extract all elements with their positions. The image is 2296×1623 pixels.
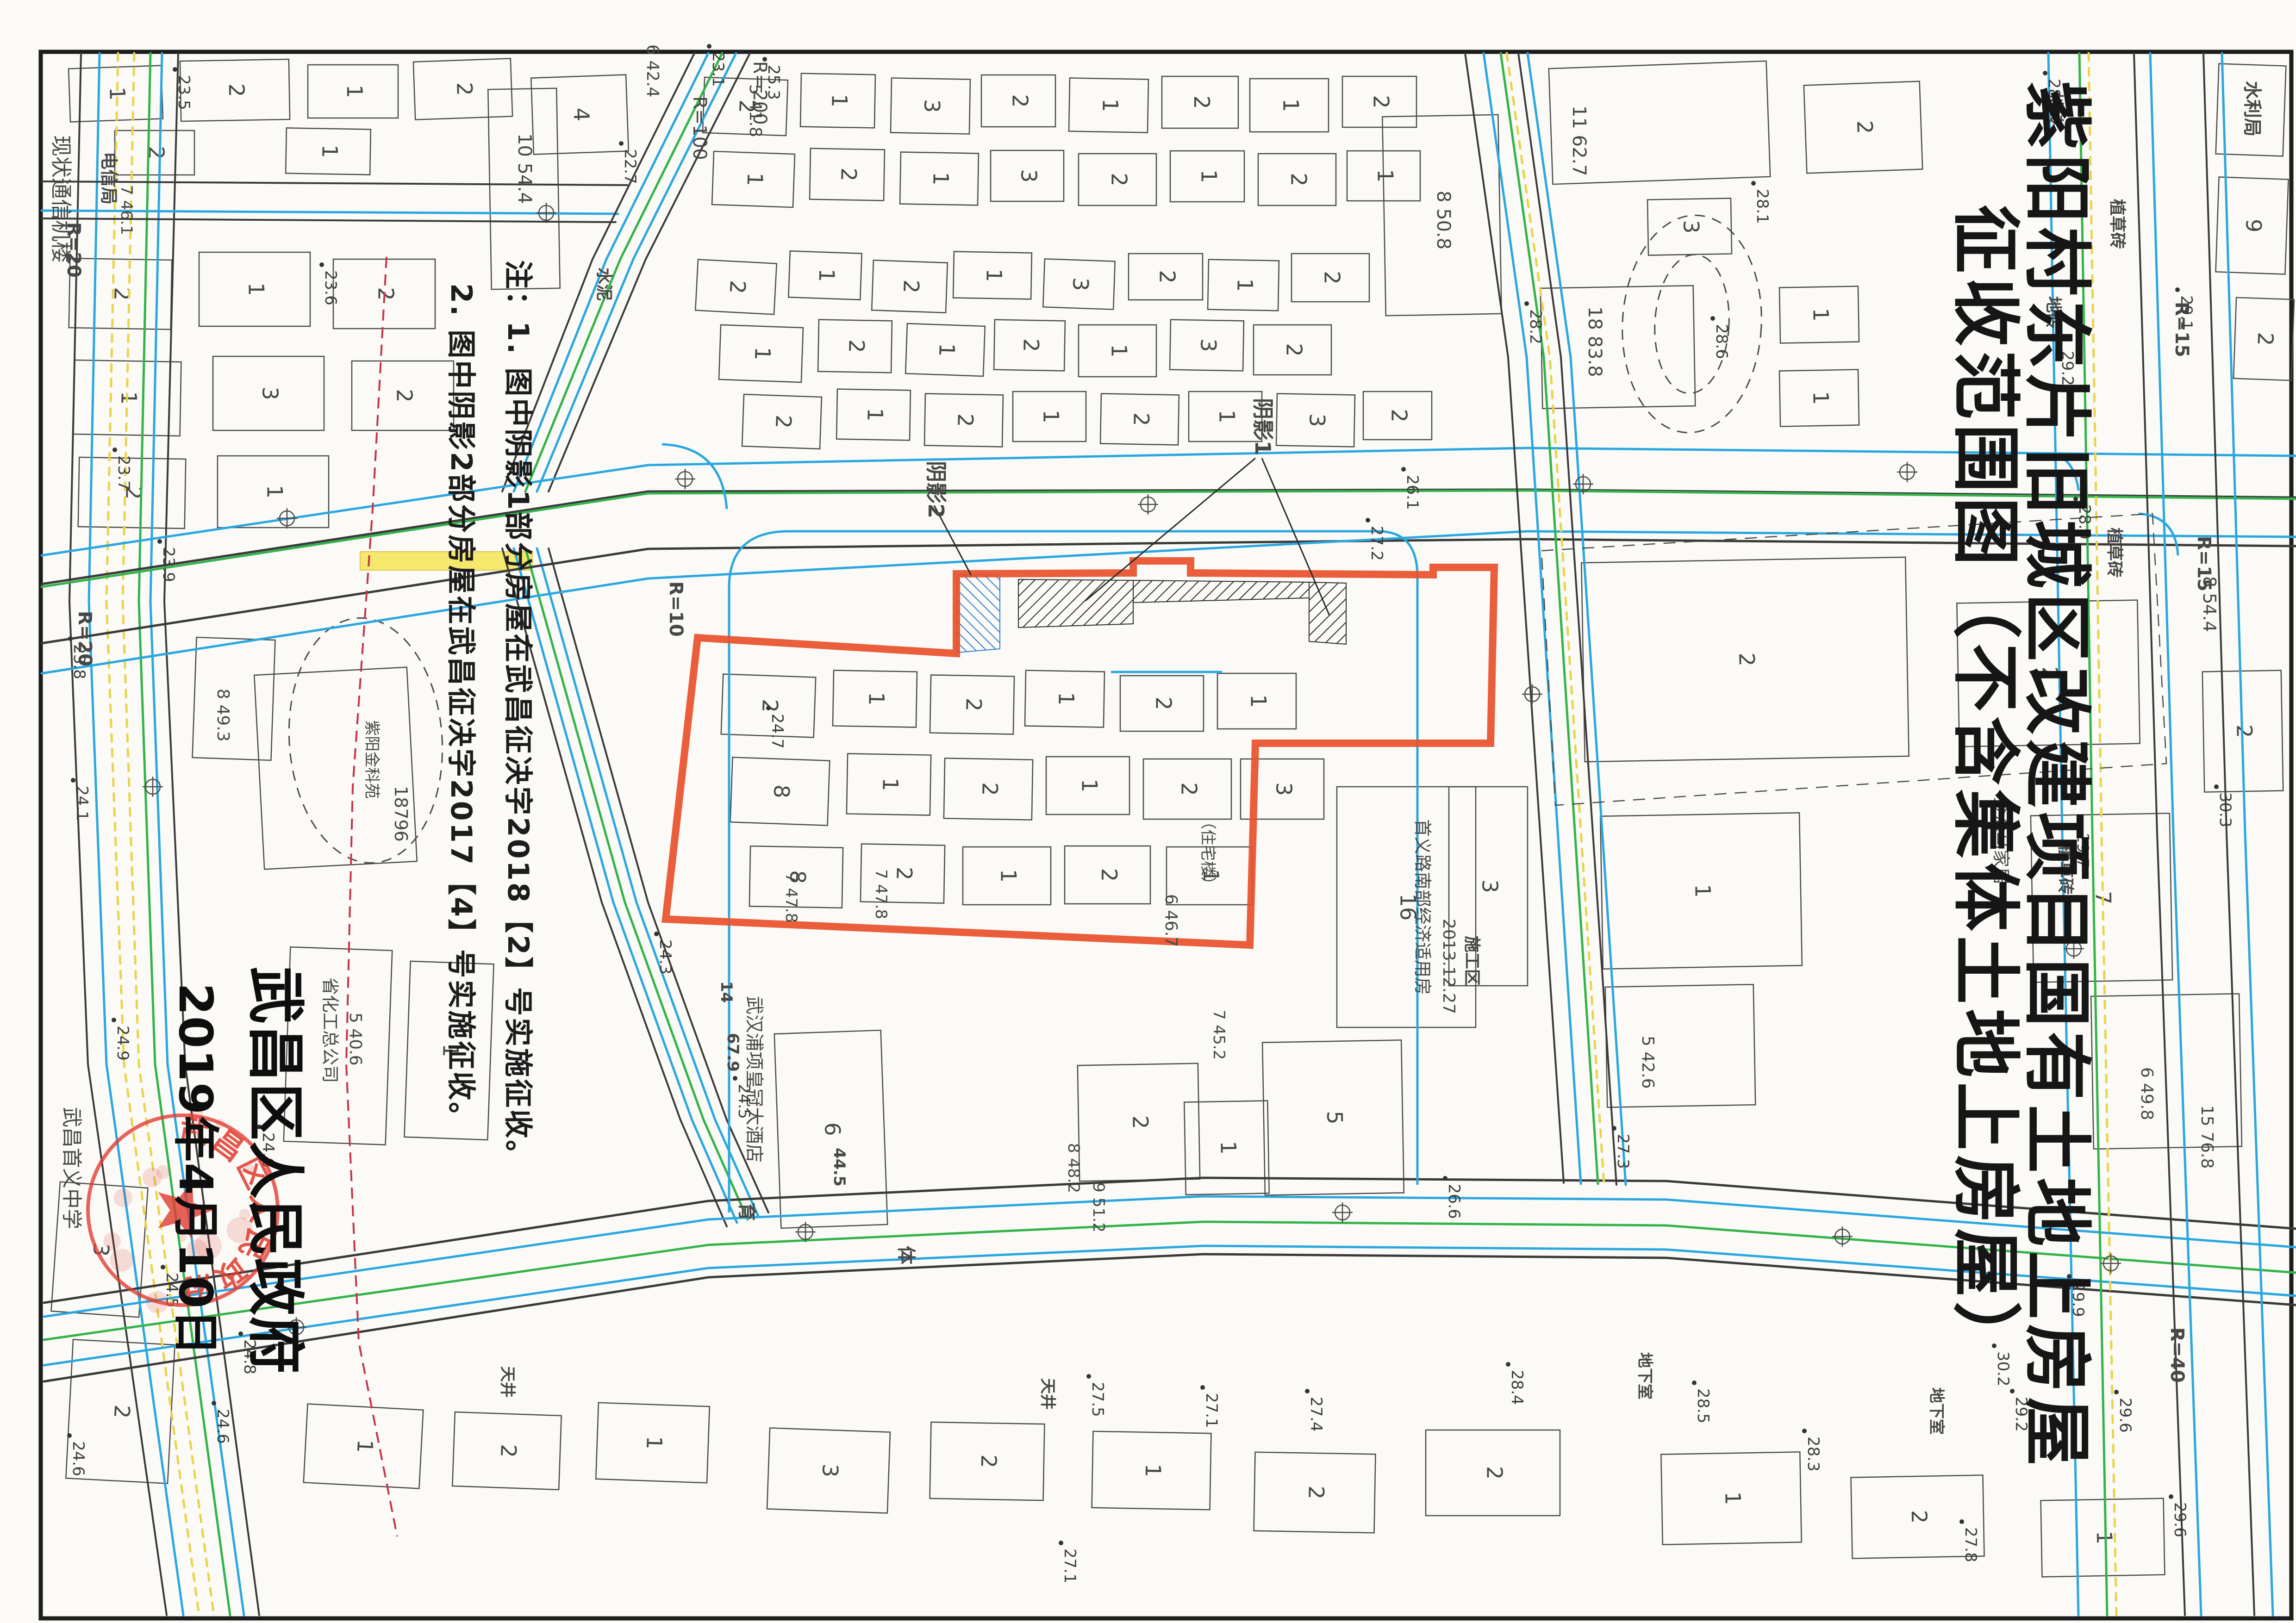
parcel-number: 2 — [898, 280, 924, 294]
map-label: 9 51.2 — [1089, 1182, 1108, 1232]
map-label: 6 46.7 — [1161, 894, 1180, 947]
parcel-number: 1 — [1808, 308, 1834, 322]
map-label: 5 41.8 — [746, 84, 765, 137]
parcel-number: 1 — [1141, 1463, 1166, 1477]
parcel-number: 1 — [827, 93, 852, 107]
parcel-number: 1 — [742, 172, 768, 187]
map-label: 育 — [736, 1202, 757, 1221]
road-line — [1507, 53, 1604, 1184]
elevation-dot — [2214, 784, 2219, 789]
parcel-number: 1 — [342, 85, 367, 98]
parcel-outline — [1605, 984, 1755, 1107]
parcel-number: 4 — [569, 107, 594, 122]
dashed-oval — [1617, 211, 1767, 436]
elevation-value: 27.3 — [1614, 1134, 1632, 1169]
parcel-number: 8 — [769, 784, 794, 799]
map-note-1: 注：1. 图中阴影1部分房屋在武昌征决字2018【2】号实施征收。 — [501, 260, 535, 1170]
elevation-value: 28.3 — [1804, 1436, 1822, 1472]
parcel-number: 3 — [1272, 782, 1297, 796]
parcel-number: 2 — [1018, 338, 1044, 352]
road-line — [42, 181, 627, 185]
elevation-dot — [212, 1401, 216, 1405]
map-label: 67.9 — [724, 1033, 742, 1072]
parcel-number: 3 — [1068, 277, 1093, 292]
elevation-dot — [766, 706, 771, 710]
parcel-number: 1 — [642, 1436, 667, 1450]
parcel-number: 1 — [1107, 344, 1132, 357]
elevation-value: 27.5 — [1088, 1382, 1107, 1417]
map-label: 地下室 — [1635, 1352, 1654, 1399]
parcel-number: 1 — [996, 869, 1021, 883]
elevation-dot — [1443, 1176, 1447, 1181]
parcel-number: 2 — [1286, 173, 1311, 186]
map-label: 首义路南部经济适用房 — [1412, 819, 1433, 995]
map-label: 武昌首义中学 — [60, 1107, 83, 1229]
elevation-dot — [2043, 71, 2047, 75]
shadow-leader-line — [1086, 458, 1255, 601]
elevation-dot — [67, 1433, 72, 1438]
parcel-number: 1 — [878, 777, 903, 791]
parcel-number: 2 — [1369, 95, 1394, 108]
parcel-number: 2 — [757, 699, 783, 713]
dashed-boundary-line — [346, 257, 397, 1536]
parcel-number: 2 — [953, 413, 978, 427]
road-line — [89, 53, 183, 1615]
elevation-dot — [1959, 1519, 1964, 1524]
elevation-dot — [1751, 181, 1756, 186]
elevation-dot — [654, 932, 659, 936]
parcel-number: 1 — [2092, 1530, 2117, 1544]
parcel-number: 1 — [1720, 1491, 1746, 1505]
elevation-value: 22.7 — [621, 149, 639, 184]
map-label: R=100 — [689, 96, 710, 160]
elevation-value: 28.4 — [1508, 1370, 1526, 1405]
road-line — [2222, 53, 2273, 1615]
parcel-number: 9 — [2241, 218, 2266, 233]
parcel-number: 2 — [961, 697, 986, 711]
parcel-number: 2 — [452, 82, 477, 96]
parcel-number: 2 — [1129, 412, 1154, 426]
road-line — [1465, 53, 1564, 1183]
parcel-number: 2 — [392, 389, 417, 402]
elevation-value: 29.6 — [2116, 1398, 2134, 1433]
map-canvas: 1212412213212121213212121213212121213221… — [0, 0, 2296, 1623]
map-label: 14 — [717, 981, 736, 1003]
elevation-dot — [2169, 1494, 2173, 1499]
map-label: 7 46.1 — [117, 185, 136, 235]
elevation-value: 27.1 — [1061, 1548, 1079, 1584]
elevation-dot — [112, 448, 117, 452]
parcel-number: 2 — [771, 415, 796, 429]
parcel-number: 2 — [844, 339, 869, 353]
elevation-value: 27.4 — [1307, 1397, 1325, 1432]
elevation-value: 24.1 — [73, 786, 91, 821]
map-label: 8 48.2 — [1064, 1143, 1083, 1193]
parcel-number: 2 — [1387, 409, 1412, 422]
parcel-number: 3 — [1017, 169, 1042, 182]
elevation-dot — [733, 1076, 737, 1081]
map-label: 阴影2 — [923, 461, 948, 518]
parcel-number: 2 — [496, 1444, 521, 1458]
road-line — [1501, 53, 1598, 1184]
map-label: 10 54.4 — [514, 133, 535, 204]
parcel-number: 2 — [977, 782, 1003, 796]
elevation-dot — [1710, 316, 1715, 321]
parcel-number: 2 — [976, 1454, 1002, 1468]
map-label: 7 47.8 — [872, 869, 890, 919]
parcel-number: 2 — [1189, 95, 1214, 109]
parcel-number: 2 — [1128, 1115, 1153, 1129]
elevation-value: 23.8 — [70, 644, 88, 679]
seal-speckle — [110, 1249, 133, 1272]
parcel-number: 2 — [224, 83, 250, 97]
authority-name: 武昌区人民政府 — [242, 966, 308, 1374]
elevation-dot — [112, 1018, 116, 1022]
parcel-number: 1 — [862, 408, 888, 422]
elevation-dot — [762, 57, 767, 62]
map-title-line2: 征收范围图（不含集体土地上房屋） — [1946, 205, 2025, 1374]
utility-curve — [662, 444, 727, 509]
elevation-dot — [1086, 1374, 1091, 1379]
map-label: 11 62.7 — [1568, 106, 1590, 176]
parcel-number: 3 — [1304, 413, 1330, 427]
elevation-dot — [1059, 1541, 1063, 1545]
elevation-value: 25.3 — [764, 65, 783, 100]
parcel-number: 2 — [1155, 270, 1180, 283]
map-label: 6 49.8 — [2137, 1067, 2156, 1120]
parcel-number: 1 — [1373, 169, 1398, 182]
parcel-number: 1 — [116, 391, 142, 405]
parcel-number: 1 — [1232, 278, 1258, 292]
map-label: 阴影1 — [1250, 398, 1275, 455]
map-note-2: 2. 图中阴影2部分房屋在武昌征决字2017【4】号实施征收。 — [444, 283, 478, 1132]
map-label: 植草砖 — [2105, 528, 2124, 578]
authority-date: 2019年4月10日 — [168, 983, 223, 1356]
parcel-number: 1 — [1215, 410, 1240, 423]
map-label: 体 — [895, 1246, 917, 1264]
map-label: 武汉浦项皇冠大酒店 — [743, 996, 765, 1163]
parcel-number: 1 — [814, 268, 840, 283]
elevation-dot — [319, 262, 324, 267]
map-label: 天井 — [498, 1366, 517, 1398]
parcel-number: 2 — [1107, 173, 1132, 186]
parcel-number: 1 — [1808, 391, 1834, 405]
shadow2-hatch — [957, 575, 1000, 653]
parcel-number: 3 — [1196, 338, 1221, 352]
elevation-dot — [2114, 1390, 2119, 1394]
parcel-number: 1 — [1216, 1141, 1241, 1155]
elevation-dot — [707, 44, 711, 49]
elevation-dot — [157, 539, 162, 544]
parcel-number: 2 — [1907, 1510, 1932, 1524]
elevation-value: 28.5 — [1694, 1388, 1712, 1424]
parcel-number: 1 — [1197, 169, 1222, 183]
map-label: 省化工总公司 — [320, 977, 340, 1083]
elevation-value: 28.6 — [1712, 324, 1731, 359]
elevation-value: 23.1 — [709, 52, 727, 87]
parcel-number: 2 — [1482, 1466, 1507, 1480]
parcel-number: 3 — [919, 99, 945, 113]
parcel-number: 2 — [109, 1404, 135, 1419]
seal-speckle — [143, 1168, 162, 1187]
map-label: 6 42.4 — [643, 44, 662, 98]
parcel-number: 1 — [934, 343, 960, 357]
parcel-number: 1 — [750, 347, 775, 361]
elevation-value: 26.1 — [1403, 475, 1422, 510]
elevation-value: 24.6 — [213, 1409, 232, 1444]
map-title-line1: 紫阳村东片旧城区改建项目国有土地上房屋 — [2017, 81, 2096, 1470]
map-label: 8 50.8 — [1433, 191, 1454, 249]
elevation-dot — [1506, 1362, 1510, 1367]
parcel-number: 5 — [1322, 1111, 1348, 1125]
parcel-number: 2 — [1734, 653, 1759, 666]
elevation-dot — [1524, 301, 1529, 306]
parcel-number: 1 — [1077, 779, 1102, 792]
parcel-number: 2 — [1282, 343, 1307, 356]
parcel-number: 3 — [258, 386, 283, 400]
parcel-number: 2 — [1304, 1486, 1329, 1499]
parcel-number: 2 — [892, 866, 917, 880]
utility-curve — [2139, 514, 2178, 555]
parcel-outline — [193, 637, 275, 760]
map-label: 8 54.4 — [2199, 576, 2220, 632]
seal-speckle — [114, 1188, 132, 1207]
map-label: 44.5 — [830, 1148, 849, 1187]
elevation-dot — [2010, 1389, 2015, 1393]
map-label: R=10 — [665, 581, 686, 637]
parcel-number: 2 — [374, 287, 399, 300]
parcel-number: 3 — [1478, 879, 1503, 893]
map-label: 电信局 — [99, 152, 119, 205]
elevation-value: 30.3 — [2216, 792, 2234, 827]
map-label: 现状通信机楼 — [49, 135, 74, 263]
elevation-value: 24.6 — [69, 1441, 87, 1476]
parcel-number: 2 — [1008, 94, 1033, 107]
shadow1-hatch — [1309, 582, 1346, 644]
parcel-number: 1 — [1098, 98, 1123, 112]
elevation-dot — [1401, 467, 1406, 472]
map-label: 18796 — [391, 786, 411, 842]
parcel-number: 1 — [864, 692, 889, 706]
parcel-number: 2 — [836, 168, 861, 181]
map-label: 18 83.8 — [1584, 306, 1605, 377]
elevation-value: 27.1 — [1202, 1393, 1221, 1428]
map-label: 7 47.8 — [782, 873, 800, 923]
elevation-value: 23.6 — [321, 270, 340, 305]
parcel-number: 2 — [1151, 696, 1176, 710]
parcel-number: 2 — [1177, 782, 1202, 796]
map-label: 15 76.8 — [2197, 1105, 2216, 1169]
parcel-number: 2 — [2232, 724, 2257, 738]
map-label: 5 40.6 — [346, 1013, 365, 1066]
parcel-number: 2 — [1320, 271, 1345, 284]
elevation-value: 24.7 — [768, 714, 786, 749]
elevation-value: 23.9 — [159, 547, 178, 582]
map-label: 天井 — [1038, 1378, 1057, 1410]
elevation-dot — [1692, 1380, 1697, 1385]
map-label: 施工区 — [1462, 936, 1481, 986]
map-label: 紫阳金科苑 — [362, 720, 381, 799]
elevation-dot — [68, 636, 73, 641]
elevation-dot — [173, 67, 177, 72]
elevation-value: 24.9 — [113, 1026, 132, 1061]
parcel-number: 3 — [1678, 220, 1704, 234]
map-label: 2013.12.27 — [1439, 919, 1458, 1014]
scanned-map-page: 1212412213212121213212121213212121213221… — [0, 0, 2296, 1623]
parcel-number: 1 — [352, 1439, 378, 1454]
parcel-number: 1 — [1054, 692, 1079, 706]
elevation-value: 28.2 — [1526, 309, 1545, 344]
parcel-number: 1 — [317, 144, 343, 158]
map-label: 水利局 — [2241, 81, 2263, 137]
elevation-dot — [2175, 287, 2180, 292]
parcel-number: 1 — [1246, 694, 1271, 708]
shadow1-hatch — [1018, 579, 1133, 628]
parcel-number: 1 — [244, 282, 269, 296]
parcel-number: 1 — [262, 485, 287, 498]
elevation-value: 23.7 — [114, 455, 133, 491]
parcel-number: 2 — [1097, 868, 1122, 882]
parcel-number: 6 — [820, 1122, 845, 1136]
elevation-value: 26.6 — [1445, 1184, 1463, 1219]
parcel-number: 1 — [981, 268, 1007, 282]
shadow1-hatch — [1133, 580, 1309, 603]
map-label: 5 42.6 — [1638, 1036, 1657, 1089]
elevation-value: 27.2 — [1367, 526, 1386, 561]
elevation-value: 29.6 — [2171, 1502, 2189, 1537]
map-label: 水泥 — [594, 267, 613, 301]
elevation-dot — [1802, 1429, 1807, 1433]
parcel-number: 1 — [928, 172, 954, 186]
map-label: 植草砖 — [2108, 199, 2127, 249]
elevation-dot — [619, 141, 624, 146]
elevation-dot — [1200, 1385, 1205, 1390]
road-line — [123, 53, 214, 1615]
parcel-number: 1 — [1690, 884, 1716, 898]
map-label: R=40 — [2166, 1327, 2188, 1383]
map-label: （住宅楼） — [1198, 814, 1217, 892]
parcel-number: 1 — [1279, 99, 1304, 112]
map-label: 7 45.2 — [1210, 1010, 1228, 1060]
elevation-value: 29.1 — [2177, 295, 2196, 330]
elevation-value: 24.3 — [656, 939, 674, 975]
elevation-dot — [71, 778, 75, 783]
parcel-number: 3 — [817, 1463, 843, 1478]
map-label: 地下室 — [1927, 1387, 1946, 1435]
elevation-dot — [1305, 1389, 1310, 1393]
parcel-number: 1 — [1039, 410, 1064, 423]
elevation-value: 27.8 — [1961, 1527, 1980, 1562]
parcel-number: 2 — [725, 280, 750, 294]
seal-speckle — [103, 1232, 121, 1250]
road-line — [139, 53, 230, 1615]
map-label: 8 49.3 — [213, 689, 232, 742]
elevation-value: 24.5 — [735, 1084, 753, 1119]
elevation-value: 28.1 — [1753, 189, 1772, 224]
elevation-dot — [161, 1265, 165, 1269]
parcel-number: 2 — [1852, 120, 1878, 134]
elevation-dot — [1366, 518, 1370, 522]
elevation-dot — [1612, 1126, 1616, 1131]
elevation-value: 23.5 — [175, 75, 193, 110]
parcel-number: 2 — [2253, 332, 2278, 346]
